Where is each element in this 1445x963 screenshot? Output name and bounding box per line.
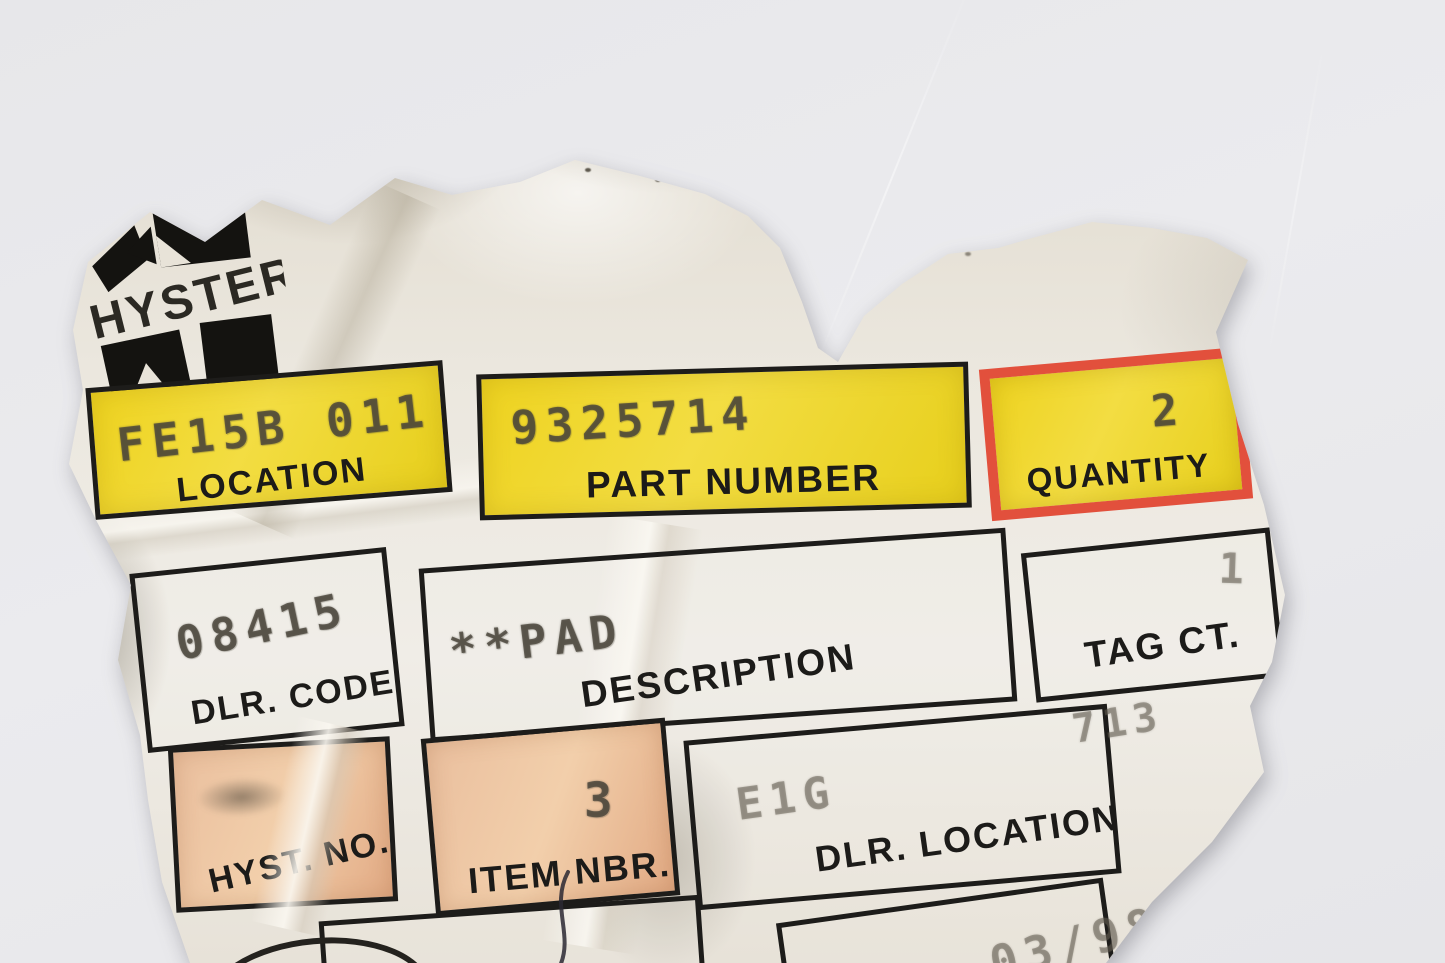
torn-edge-specks bbox=[880, 238, 886, 242]
field-hyst-no: HYST. NO. bbox=[168, 736, 398, 912]
quantity-value: 2 bbox=[1149, 384, 1187, 438]
field-description: **PAD DESCRIPTION bbox=[419, 528, 1018, 743]
description-value: **PAD bbox=[446, 603, 627, 678]
field-quantity: 2 QUANTITY bbox=[979, 347, 1253, 521]
tag-ct-label: TAG CT. bbox=[1082, 613, 1243, 676]
pen-stroke bbox=[540, 868, 660, 963]
torn-edge-specks bbox=[585, 168, 591, 172]
part-number-label: PART NUMBER bbox=[586, 457, 882, 507]
photo-scene: HYSTER FE15B 011 LOCATION 9325714 PART N… bbox=[0, 0, 1445, 963]
field-tag-ct: 1 TAG CT. bbox=[1021, 527, 1285, 702]
illegible-stamp-smudge bbox=[188, 763, 321, 830]
quantity-label: QUANTITY bbox=[1025, 446, 1212, 500]
part-number-value: 9325714 bbox=[509, 386, 757, 455]
dlr-code-label: DLR. CODE bbox=[188, 663, 397, 734]
field-dlr-code: 08415 DLR. CODE bbox=[129, 547, 404, 753]
field-location: FE15B 011 LOCATION bbox=[85, 360, 452, 520]
location-value: FE15B 011 bbox=[114, 383, 434, 472]
dlr-code-value: 08415 bbox=[171, 582, 354, 671]
item-nbr-value: 3 bbox=[583, 772, 621, 829]
crease-over-hyst-no bbox=[250, 716, 369, 937]
tag-shadow-wrap: HYSTER FE15B 011 LOCATION 9325714 PART N… bbox=[0, 0, 1445, 963]
dlr-location-label: DLR. LOCATION bbox=[813, 796, 1123, 880]
tag-ct-value: 1 bbox=[1218, 544, 1252, 594]
field-dlr-location: E1G DLR. LOCATION bbox=[683, 704, 1121, 910]
dlr-location-value: E1G bbox=[733, 766, 840, 831]
field-part-number: 9325714 PART NUMBER bbox=[476, 362, 972, 521]
hyst-no-label: HYST. NO. bbox=[205, 822, 394, 902]
parts-tag: HYSTER FE15B 011 LOCATION 9325714 PART N… bbox=[0, 0, 1445, 963]
edge-number: 713 bbox=[1069, 693, 1167, 753]
